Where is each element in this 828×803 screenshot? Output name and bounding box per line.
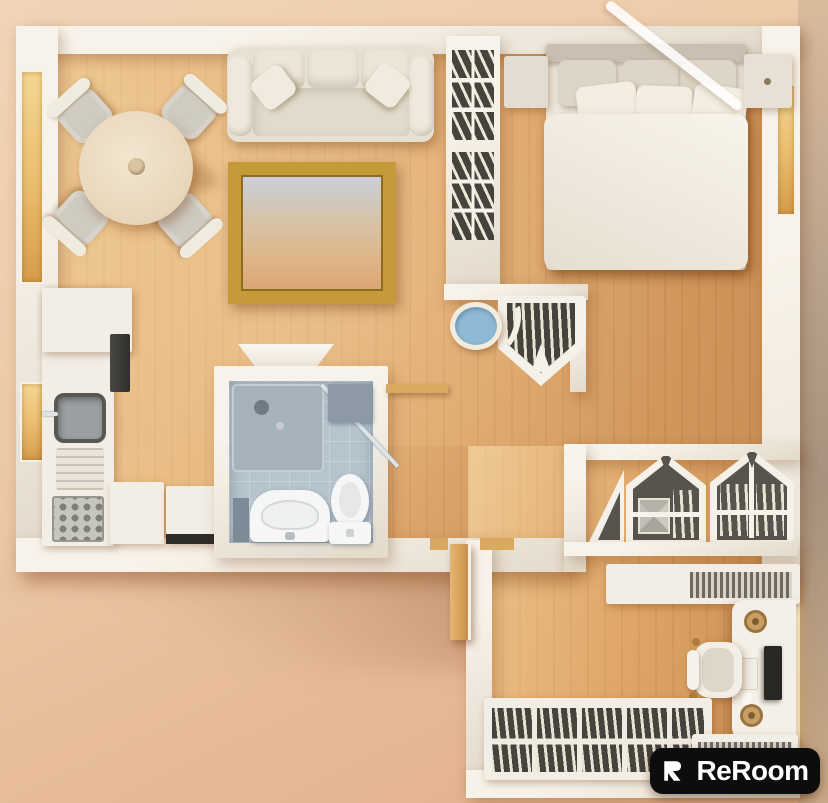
mouse bbox=[742, 692, 752, 705]
bath-side-panel bbox=[233, 498, 249, 542]
kitchen-sink bbox=[54, 393, 106, 443]
shelf-base-ledge bbox=[564, 542, 798, 556]
vanity-sink bbox=[250, 490, 330, 542]
office-chair bbox=[694, 642, 742, 698]
stove-top bbox=[52, 496, 104, 542]
table-center-knob bbox=[128, 158, 145, 175]
nightstand-right bbox=[744, 54, 792, 108]
desk-speaker-top bbox=[744, 610, 767, 633]
divider-bookshelf-lower-books bbox=[452, 152, 494, 240]
armrest-knob bbox=[692, 638, 700, 646]
window-left-upper bbox=[20, 70, 44, 284]
desk-speaker-bottom bbox=[740, 704, 763, 727]
door-sill bbox=[480, 538, 514, 550]
wood-wall-ledge bbox=[386, 384, 448, 393]
toilet-tank bbox=[329, 522, 371, 544]
nightstand-left bbox=[504, 56, 548, 108]
sofa-back-cushion bbox=[307, 50, 359, 88]
window-left-lower bbox=[20, 382, 44, 462]
background-right-shade bbox=[798, 0, 828, 803]
office-chair-back bbox=[687, 650, 699, 690]
house-shelf-divider bbox=[749, 462, 754, 538]
toilet-seat-inner bbox=[339, 482, 361, 518]
appliance-kick-plate bbox=[166, 534, 220, 544]
gold-framed-picture bbox=[228, 162, 396, 304]
nightstand-knob bbox=[764, 78, 771, 85]
vanity-basin bbox=[261, 500, 319, 530]
divider-bookshelf-upper-books bbox=[452, 50, 494, 140]
reroom-watermark: ReRoom bbox=[650, 748, 820, 794]
office-chair-seat bbox=[702, 648, 734, 692]
record-spines bbox=[690, 572, 792, 598]
keyboard bbox=[740, 658, 758, 690]
reroom-brand-text: ReRoom bbox=[696, 755, 808, 787]
vanity-faucet bbox=[285, 532, 295, 540]
record-shelf bbox=[606, 564, 800, 604]
sofa-armrest-left bbox=[227, 56, 253, 136]
sofa-armrest-right bbox=[409, 56, 434, 136]
duvet bbox=[544, 114, 748, 270]
faucet bbox=[42, 412, 58, 416]
drainboard bbox=[56, 448, 104, 490]
house-shelf-rail bbox=[630, 512, 702, 517]
appliance-cabinet-1 bbox=[110, 482, 164, 544]
oven bbox=[110, 334, 130, 392]
reroom-logo-mark bbox=[661, 758, 687, 784]
wooden-door bbox=[450, 544, 471, 640]
wall-bedroom-bottom bbox=[564, 444, 800, 460]
house-shelf-rail bbox=[714, 510, 790, 515]
toilet-bowl bbox=[331, 474, 369, 528]
shower-drain bbox=[254, 400, 269, 415]
shower-door-handle bbox=[276, 422, 284, 430]
door-sill bbox=[430, 538, 448, 550]
bathroom-cabinet bbox=[328, 384, 372, 422]
monitor bbox=[764, 646, 782, 700]
toilet-flush-button bbox=[346, 529, 354, 537]
sofa bbox=[227, 48, 434, 142]
dining-table bbox=[79, 111, 193, 225]
floor-plan-render: ReRoom bbox=[0, 0, 828, 803]
